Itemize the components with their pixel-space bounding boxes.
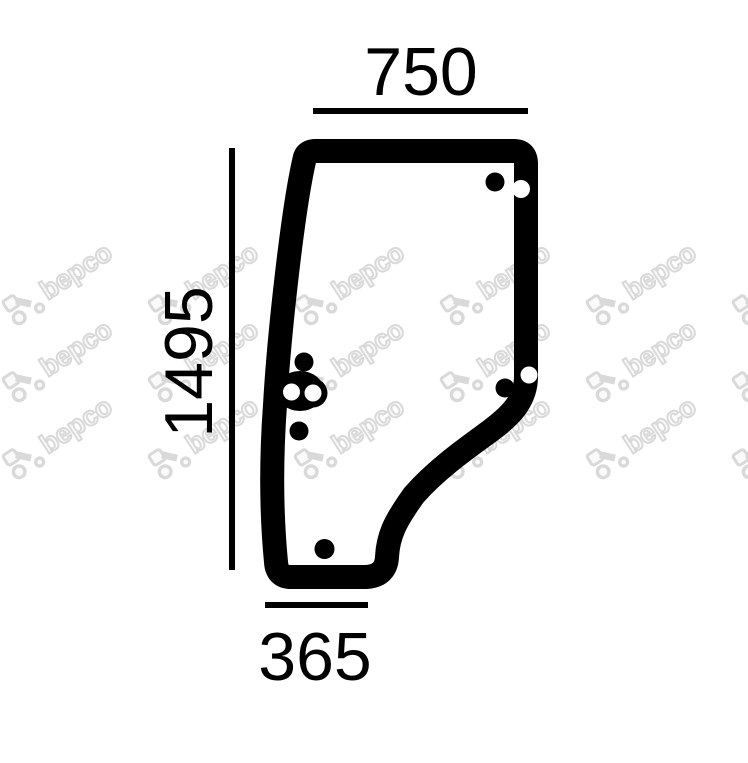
frame-hole-left-a <box>283 384 300 401</box>
glass-technical-drawing: 750 1495 365 <box>0 0 748 763</box>
frame-hole-left-b <box>305 385 322 402</box>
glass-hole-top-right <box>486 173 505 192</box>
frame-hole-right-bend <box>521 367 538 384</box>
glass-hole-right-bend <box>496 379 515 398</box>
frame-hole-top-right <box>512 180 530 198</box>
dimension-bottom-label: 365 <box>258 619 371 695</box>
dimension-top-label: 750 <box>364 34 477 110</box>
dimension-left-label: 1495 <box>151 286 227 437</box>
glass-hole-left-upper <box>295 353 314 372</box>
product-drawing-page: { "page": { "background": "#ffffff" }, "… <box>0 0 748 763</box>
glass-hole-left-lower <box>290 422 309 441</box>
glass-hole-bottom <box>315 539 335 559</box>
